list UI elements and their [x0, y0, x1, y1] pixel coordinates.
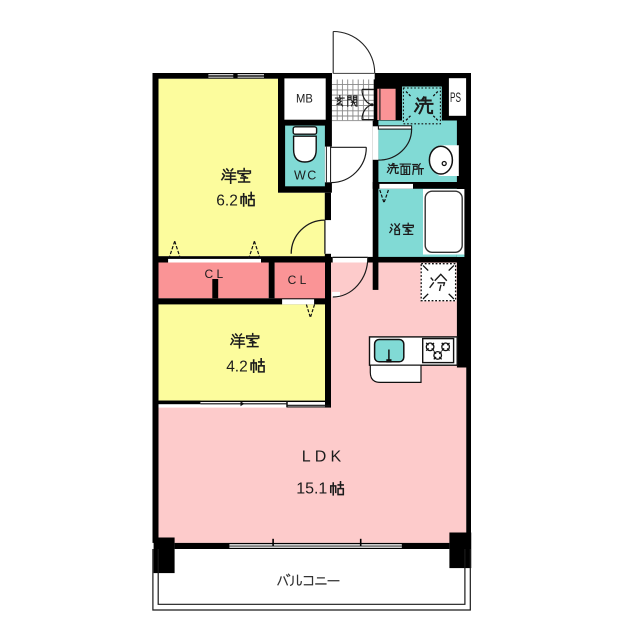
svg-text:4.2: 4.2 [226, 359, 248, 376]
svg-text:6.2: 6.2 [216, 193, 238, 210]
svg-text:WC: WC [294, 168, 318, 182]
svg-text:PS: PS [450, 90, 461, 105]
svg-text:15.1: 15.1 [296, 481, 327, 498]
svg-text:C L: C L [288, 273, 307, 287]
svg-text:C L: C L [205, 267, 224, 281]
svg-text:MB: MB [296, 92, 313, 106]
svg-text:LDK: LDK [302, 449, 345, 466]
